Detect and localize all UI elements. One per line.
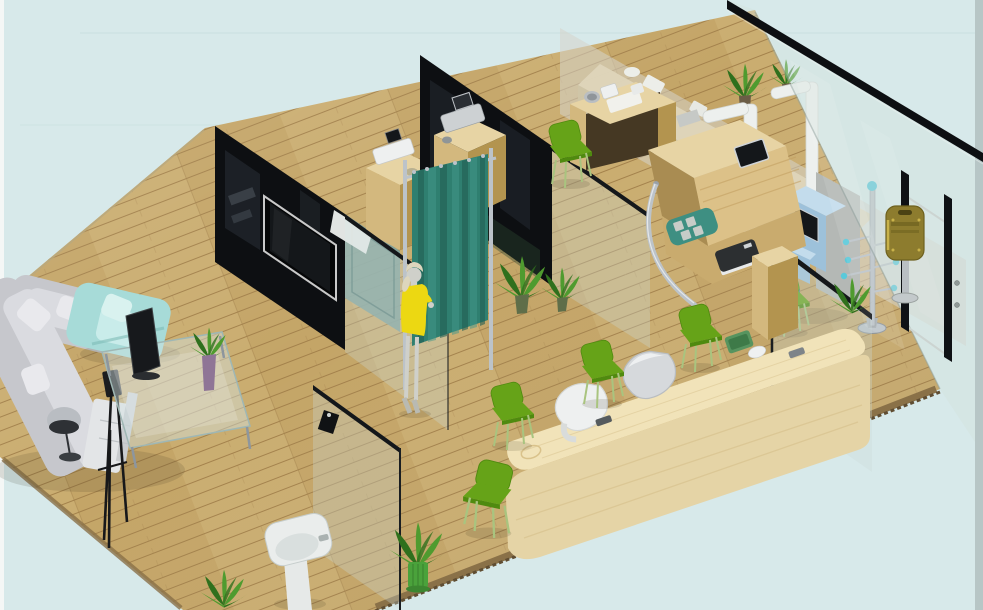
door-hinge: [955, 281, 960, 286]
right-edge-strip: [975, 0, 983, 610]
door-frame-bar: [944, 194, 952, 362]
box-handle-slot: [898, 210, 912, 215]
render-stage: [0, 0, 983, 610]
wooden-cabinet: [752, 246, 798, 340]
counter-device: [624, 67, 640, 77]
curtain-post: [489, 148, 493, 370]
door-hinge: [955, 303, 960, 308]
scene-canvas: [0, 0, 983, 610]
